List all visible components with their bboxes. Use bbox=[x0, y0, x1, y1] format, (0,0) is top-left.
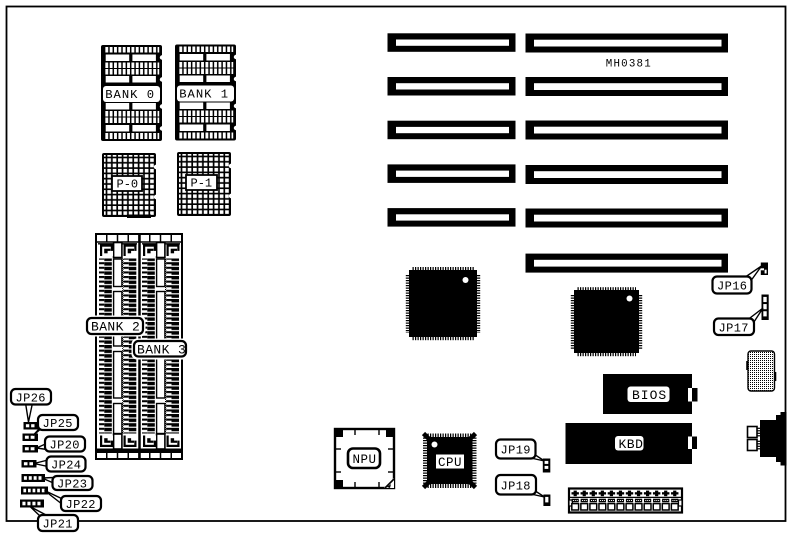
svg-text:BIOS: BIOS bbox=[632, 388, 667, 403]
svg-text:JP16: JP16 bbox=[717, 280, 747, 294]
svg-text:MH0381: MH0381 bbox=[606, 59, 652, 71]
svg-text:JP24: JP24 bbox=[51, 459, 81, 473]
svg-text:JP25: JP25 bbox=[43, 417, 73, 431]
svg-text:JP21: JP21 bbox=[43, 518, 73, 532]
svg-text:BANK 1: BANK 1 bbox=[179, 88, 229, 102]
svg-text:CPU: CPU bbox=[438, 456, 462, 470]
svg-text:P-0: P-0 bbox=[117, 178, 139, 192]
svg-text:JP19: JP19 bbox=[501, 444, 531, 458]
svg-text:BANK 3: BANK 3 bbox=[137, 342, 186, 357]
svg-text:JP18: JP18 bbox=[501, 479, 531, 493]
svg-text:JP22: JP22 bbox=[66, 498, 96, 512]
svg-text:BANK 2: BANK 2 bbox=[91, 320, 140, 335]
svg-text:P-1: P-1 bbox=[191, 177, 213, 191]
svg-text:NPU: NPU bbox=[353, 453, 377, 467]
svg-text:JP26: JP26 bbox=[16, 391, 46, 405]
svg-text:JP23: JP23 bbox=[57, 478, 87, 492]
svg-text:BANK 0: BANK 0 bbox=[105, 88, 155, 102]
svg-text:KBD: KBD bbox=[619, 437, 644, 452]
svg-text:JP17: JP17 bbox=[719, 321, 749, 335]
svg-text:JP20: JP20 bbox=[50, 439, 80, 453]
